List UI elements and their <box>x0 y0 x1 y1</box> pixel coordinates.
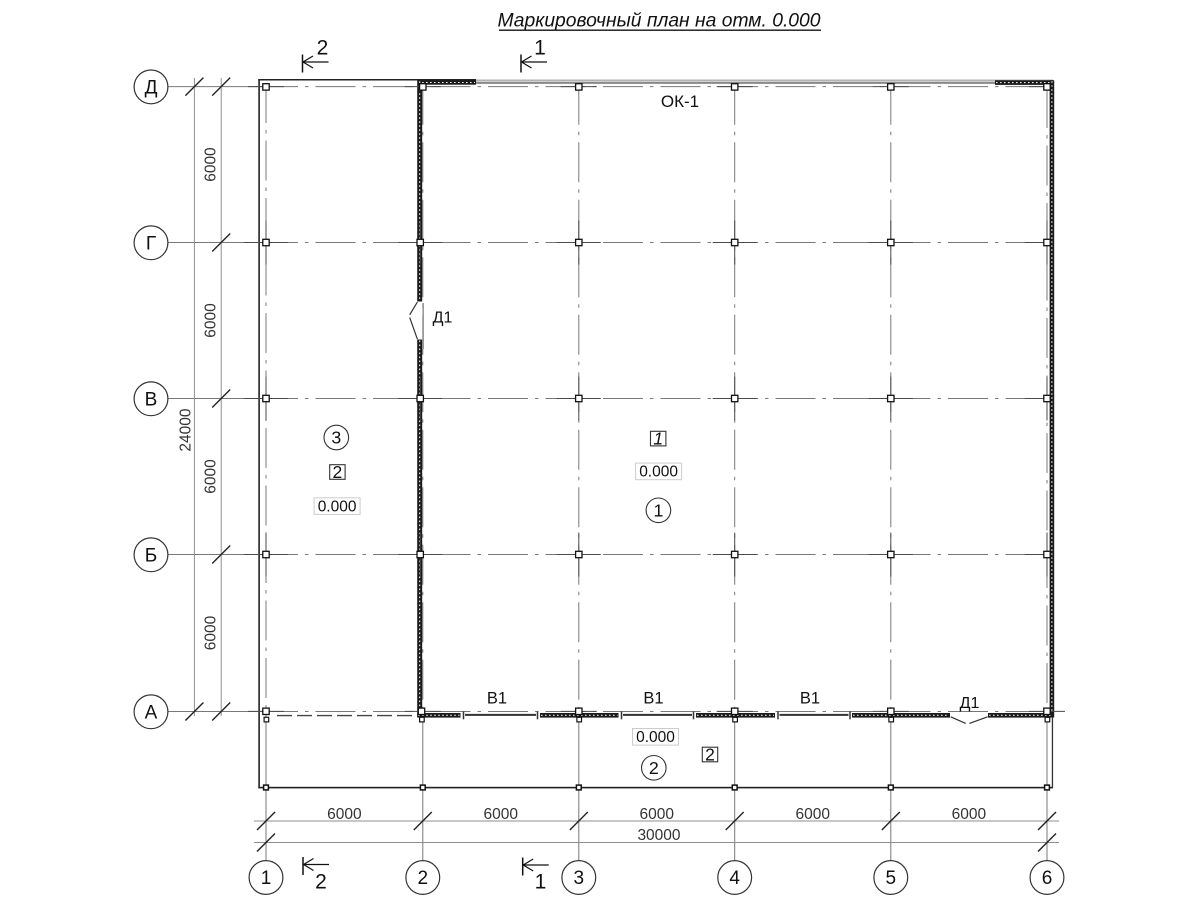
svg-text:2: 2 <box>317 37 329 60</box>
svg-text:6000: 6000 <box>640 806 675 823</box>
svg-text:В: В <box>145 389 158 410</box>
svg-text:30000: 30000 <box>637 827 680 844</box>
svg-text:Маркировочный план на отм. 0.0: Маркировочный план на отм. 0.000 <box>498 11 821 32</box>
svg-text:6000: 6000 <box>952 806 987 823</box>
svg-text:6000: 6000 <box>796 806 831 823</box>
svg-text:2: 2 <box>418 868 429 889</box>
svg-text:В1: В1 <box>643 690 663 708</box>
svg-text:6000: 6000 <box>203 459 220 494</box>
svg-text:Д1: Д1 <box>960 695 980 712</box>
svg-text:6000: 6000 <box>203 147 220 182</box>
svg-text:0.000: 0.000 <box>318 498 357 515</box>
svg-text:В1: В1 <box>487 690 507 708</box>
svg-text:1: 1 <box>534 37 546 60</box>
svg-text:Г: Г <box>146 233 156 254</box>
svg-text:0.000: 0.000 <box>636 729 675 746</box>
svg-text:0.000: 0.000 <box>639 464 678 481</box>
svg-text:6000: 6000 <box>484 806 519 823</box>
svg-text:4: 4 <box>729 868 740 889</box>
svg-text:В1: В1 <box>800 690 820 708</box>
svg-text:5: 5 <box>886 868 897 889</box>
svg-text:1: 1 <box>261 868 272 889</box>
svg-text:2: 2 <box>649 758 659 778</box>
svg-text:24000: 24000 <box>178 408 195 451</box>
svg-text:А: А <box>145 702 158 723</box>
svg-text:Д: Д <box>145 77 158 98</box>
svg-text:2: 2 <box>705 745 715 765</box>
svg-text:6: 6 <box>1042 868 1053 889</box>
svg-text:6000: 6000 <box>203 615 220 650</box>
svg-text:3: 3 <box>331 428 341 448</box>
svg-text:ОК-1: ОК-1 <box>661 92 699 111</box>
svg-text:3: 3 <box>574 868 585 889</box>
svg-text:1: 1 <box>653 501 663 521</box>
svg-text:6000: 6000 <box>327 806 362 823</box>
svg-text:2: 2 <box>333 462 343 482</box>
svg-text:6000: 6000 <box>203 303 220 338</box>
svg-text:Д1: Д1 <box>433 310 453 327</box>
svg-text:Б: Б <box>145 545 157 566</box>
svg-text:2: 2 <box>315 871 327 894</box>
svg-text:1: 1 <box>653 429 663 449</box>
svg-text:1: 1 <box>535 871 547 894</box>
